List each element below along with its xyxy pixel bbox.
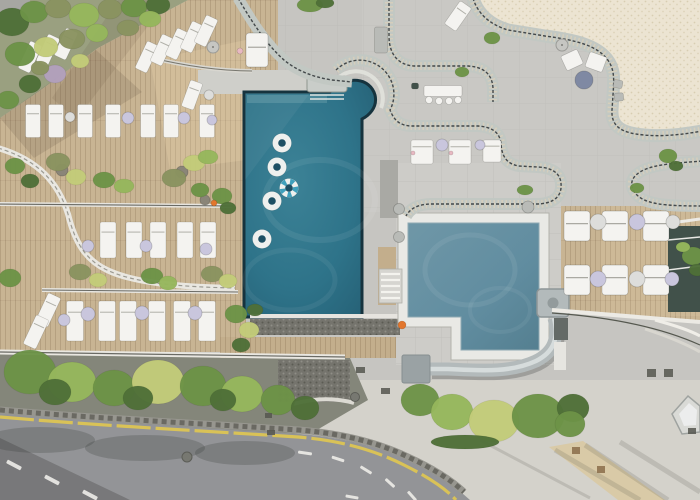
tree [431, 394, 473, 430]
sun-lounger [149, 301, 166, 341]
side-table [665, 272, 679, 286]
tree [630, 183, 644, 193]
sun-lounger [199, 301, 216, 341]
daybed [564, 211, 590, 241]
tree [45, 0, 71, 18]
tree [5, 42, 35, 66]
side-table [82, 240, 94, 252]
paving-joint [647, 369, 656, 377]
side-table [65, 112, 75, 122]
tree [162, 169, 186, 187]
slide-entry-hole [548, 298, 559, 309]
round-chair [455, 97, 462, 104]
paving-joint [267, 430, 275, 435]
umbrella [207, 41, 219, 53]
tree [69, 3, 99, 27]
tree [20, 1, 48, 23]
sun-lounger [150, 222, 166, 258]
sun-lounger [141, 105, 156, 138]
tree [512, 394, 564, 438]
paving-joint [381, 388, 390, 394]
tree [431, 435, 499, 449]
doorway [554, 318, 568, 340]
tree [517, 185, 533, 195]
side-table [590, 271, 606, 287]
tree [210, 389, 236, 411]
planter-pot [522, 201, 534, 213]
tree [291, 396, 319, 420]
chair [613, 79, 623, 88]
sun-lounger [100, 222, 116, 258]
side-table [58, 314, 70, 326]
side-table [629, 271, 645, 287]
slide-end-box [402, 355, 430, 383]
pool-buoy [398, 321, 406, 329]
tree [31, 61, 49, 75]
tree [484, 32, 500, 44]
round-chair [446, 98, 453, 105]
tree [225, 305, 247, 323]
sun-lounger [78, 105, 93, 138]
paving-joint [572, 447, 580, 454]
tree [198, 150, 218, 164]
side-table [122, 112, 134, 124]
pool-float-striped [280, 179, 299, 198]
tree [66, 169, 86, 185]
round-chair [436, 98, 443, 105]
daybed [564, 265, 590, 295]
tree [676, 242, 690, 252]
daybed [602, 211, 628, 241]
tree [455, 67, 469, 77]
tree [220, 202, 236, 214]
manhole [351, 393, 360, 402]
paving-joint [265, 413, 272, 418]
sun-lounger [26, 105, 41, 138]
side-table [188, 306, 202, 320]
tree [39, 379, 71, 405]
towel-pink [449, 151, 453, 155]
sun-lounger [483, 140, 501, 162]
side-table [590, 214, 606, 230]
sun-lounger [99, 301, 116, 341]
tree [261, 385, 295, 415]
tree [46, 153, 70, 171]
pool-float-ring [268, 158, 287, 177]
tree [555, 411, 585, 437]
side-table [207, 115, 217, 125]
sun-lounger [120, 301, 137, 341]
sun-lounger [49, 105, 64, 138]
tree [5, 158, 25, 174]
wall-piece [554, 342, 566, 370]
side-table [575, 71, 593, 89]
chair [614, 93, 624, 102]
pool-float-ring [263, 192, 282, 211]
towel-pink [237, 48, 243, 54]
tree [93, 172, 115, 188]
tree [86, 24, 108, 42]
side-table [140, 240, 152, 252]
tree [71, 54, 89, 68]
side-table [200, 243, 212, 255]
pool-float-ring [253, 230, 272, 249]
tree [232, 338, 250, 352]
manhole [182, 452, 192, 462]
side-table [666, 215, 680, 229]
tree [0, 269, 21, 287]
round-chair [426, 97, 433, 104]
tree [247, 304, 263, 316]
tree [123, 386, 153, 410]
paving-joint [664, 369, 673, 377]
overflow-gravel [250, 319, 400, 335]
daybed [643, 211, 669, 241]
sun-lounger [106, 105, 121, 138]
paving-joint [688, 428, 696, 434]
paving-joint [356, 367, 365, 373]
tree [98, 0, 122, 19]
sun-lounger [126, 222, 142, 258]
tree [69, 264, 91, 280]
side-table [629, 214, 645, 230]
tree [219, 274, 237, 288]
tree [239, 322, 259, 338]
daybed [246, 33, 268, 67]
tree [89, 273, 107, 287]
planter-pot [394, 204, 405, 215]
chair [412, 83, 419, 89]
planter-pot [394, 232, 405, 243]
tree [21, 174, 39, 188]
paving-joint [597, 466, 605, 473]
side-table [204, 90, 214, 100]
towel-pink [411, 151, 415, 155]
tree [0, 91, 19, 109]
tree [34, 37, 58, 57]
kids-pool-steps [379, 269, 402, 303]
side-table [178, 112, 190, 124]
pool-float-ring [273, 134, 292, 153]
umbrella [556, 39, 568, 51]
aerial-photo [0, 0, 700, 500]
tree [669, 161, 683, 171]
tree [139, 11, 161, 27]
side-table [135, 306, 149, 320]
bench [375, 27, 388, 53]
sun-lounger [164, 105, 179, 138]
towel-orange [211, 200, 217, 206]
tree [117, 20, 139, 36]
pool-ledge [250, 314, 400, 318]
tree [59, 29, 85, 49]
tree [316, 0, 334, 8]
tree [19, 75, 41, 93]
side-table [81, 307, 95, 321]
sun-lounger [177, 222, 193, 258]
side-table [436, 139, 448, 151]
tree [159, 276, 177, 290]
tree [114, 179, 134, 193]
bench [424, 86, 462, 97]
sun-lounger [174, 301, 191, 341]
tree [191, 183, 209, 197]
side-table [475, 140, 485, 150]
